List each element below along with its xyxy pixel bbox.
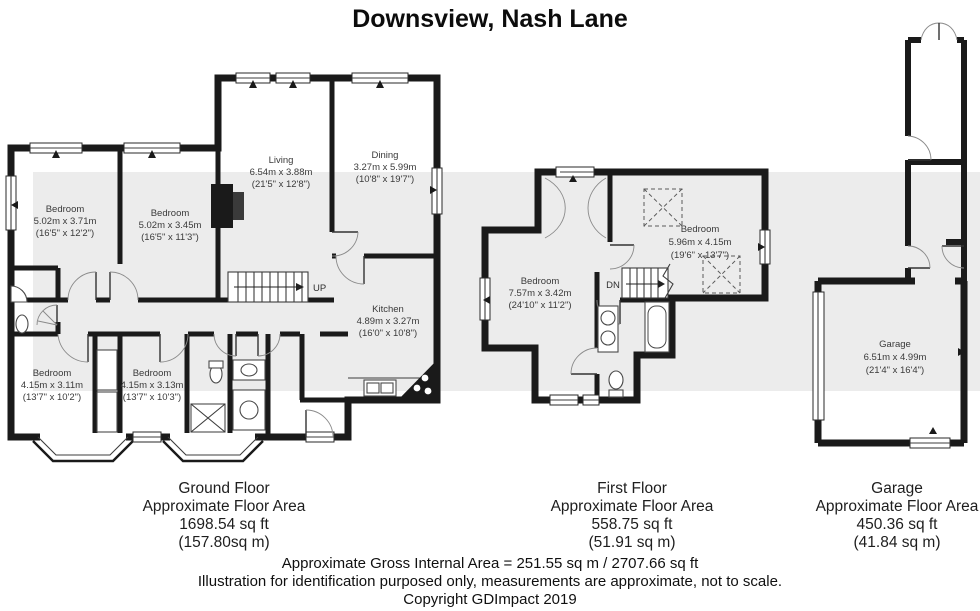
bay-window-right-outer	[163, 441, 263, 461]
chimney-breast	[211, 184, 233, 228]
room-dims-imperial: (21'5" x 12'8")	[252, 179, 310, 190]
toilet	[609, 371, 623, 389]
copyright-note: Copyright GDImpact 2019	[403, 591, 576, 608]
hob-ring-icon	[422, 375, 429, 382]
basin	[241, 364, 257, 376]
wardrobe-upper	[97, 350, 117, 390]
floorplan-drawing: Downsview, Nash Lane	[0, 0, 980, 611]
summary-area-ft: 450.36 sq ft	[856, 516, 938, 533]
room-name: Dining	[372, 150, 399, 161]
room-name: Kitchen	[372, 304, 404, 315]
tick-arrow	[929, 427, 937, 434]
room-dims-metric: 6.54m x 3.88m	[250, 167, 313, 178]
summary-subtitle: Approximate Floor Area	[143, 498, 306, 515]
ground-floor-summary: Ground Floor Approximate Floor Area 1698…	[143, 480, 306, 551]
footer-notes: Approximate Gross Internal Area = 251.55…	[198, 555, 782, 608]
summary-subtitle: Approximate Floor Area	[816, 498, 979, 515]
wardrobe-lower	[97, 392, 117, 432]
room-name: Bedroom	[681, 224, 720, 235]
room-dims-imperial: (16'5" x 11'3")	[141, 232, 199, 243]
toilet-cistern	[209, 361, 223, 368]
floorplan-page: Downsview, Nash Lane	[0, 0, 980, 611]
bay-opening-right	[170, 433, 255, 442]
room-dims-imperial: (16'0" x 10'8")	[359, 328, 417, 339]
room-name: Bedroom	[133, 368, 172, 379]
room-dims-metric: 3.27m x 5.99m	[354, 162, 417, 173]
wc-toilet	[16, 315, 28, 333]
corner-basin	[11, 286, 27, 302]
fireplace-hearth	[233, 192, 244, 220]
summary-title: Garage	[871, 480, 923, 497]
hob-ring-icon	[425, 388, 432, 395]
disclaimer-note: Illustration for identification purposed…	[198, 573, 782, 590]
bay-opening-left	[40, 433, 126, 442]
entrance-double-doors	[921, 23, 957, 40]
page-title: Downsview, Nash Lane	[352, 5, 628, 33]
room-name: Bedroom	[521, 276, 560, 287]
summary-title: Ground Floor	[178, 480, 269, 497]
sink-bowl-left	[367, 383, 379, 393]
stairs-up-label: UP	[313, 283, 326, 294]
room-dims-imperial: (21'4" x 16'4")	[866, 365, 924, 376]
summary-title: First Floor	[597, 480, 667, 497]
room-name: Bedroom	[46, 204, 85, 215]
room-name: Bedroom	[33, 368, 72, 379]
room-dims-imperial: (16'5" x 12'2")	[36, 228, 94, 239]
room-dims-imperial: (13'7" x 10'2")	[23, 392, 81, 403]
room-name: Garage	[879, 339, 911, 350]
room-dims-metric: 5.02m x 3.71m	[34, 216, 97, 227]
room-dims-metric: 6.51m x 4.99m	[864, 352, 927, 363]
basin	[601, 331, 615, 345]
room-name: Bedroom	[151, 208, 190, 219]
garage-summary: Garage Approximate Floor Area 450.36 sq …	[816, 480, 979, 551]
room-dims-metric: 4.89m x 3.27m	[357, 316, 420, 327]
room-dims-metric: 5.02m x 3.45m	[139, 220, 202, 231]
sink-bowl-right	[381, 383, 393, 393]
room-dims-metric: 4.15m x 3.13m	[121, 380, 184, 391]
summary-area-m: (51.91 sq m)	[588, 534, 675, 551]
bay-window-left-outer	[33, 441, 133, 461]
summary-area-ft: 1698.54 sq ft	[179, 516, 269, 533]
summary-area-m: (41.84 sq m)	[853, 534, 940, 551]
room-dims-imperial: (13'7" x 10'3")	[123, 392, 181, 403]
room-dims-metric: 4.15m x 3.11m	[21, 380, 83, 391]
hob-ring-icon	[414, 385, 421, 392]
stairs-down-label: DN	[606, 280, 620, 291]
basin	[601, 311, 615, 325]
summary-area-m: (157.80sq m)	[178, 534, 269, 551]
first-floor-summary: First Floor Approximate Floor Area 558.7…	[551, 480, 714, 551]
summary-area-ft: 558.75 sq ft	[591, 516, 673, 533]
room-dims-imperial: (24'10" x 11'2")	[508, 300, 571, 311]
toilet-cistern	[609, 390, 623, 397]
summary-subtitle: Approximate Floor Area	[551, 498, 714, 515]
bathtub	[645, 302, 669, 352]
room-dims-metric: 7.57m x 3.42m	[509, 288, 572, 299]
room-dims-imperial: (10'8" x 19'7")	[356, 174, 414, 185]
room-name: Living	[269, 155, 294, 166]
room-dims-metric: 5.96m x 4.15m	[669, 237, 732, 248]
gross-area-note: Approximate Gross Internal Area = 251.55…	[282, 555, 699, 572]
washer-drum-icon	[240, 401, 258, 419]
room-dims-imperial: (19'6" x 13'7")	[671, 250, 729, 261]
